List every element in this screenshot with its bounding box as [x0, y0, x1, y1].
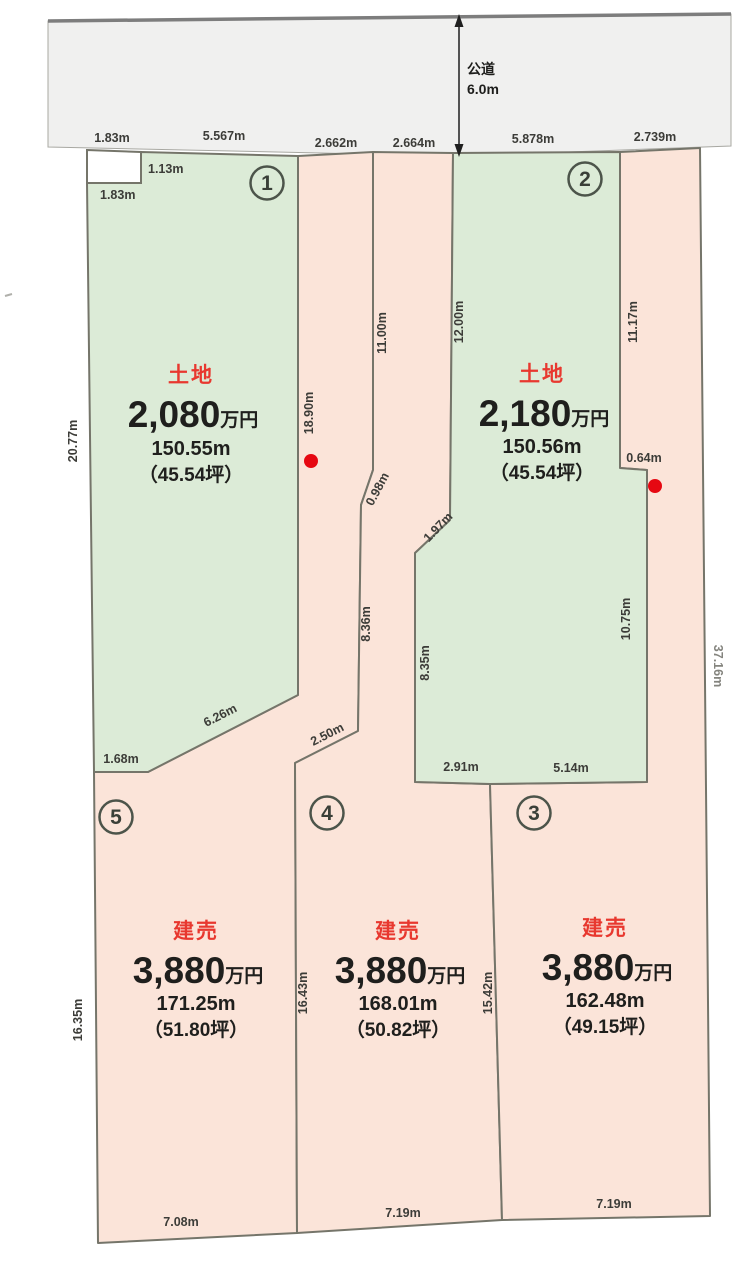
dim-strip4-top: 2.664m [393, 136, 435, 150]
dim-plot2-right-upper: 11.17m [626, 301, 640, 343]
road-area [48, 14, 731, 156]
plot-2-tsubo: （45.54坪） [490, 461, 595, 484]
dim-plot1-bottom: 1.68m [103, 752, 138, 766]
plot-1-price-value: 2,080 [128, 394, 221, 435]
plot-5-type-label: 建売 [173, 919, 219, 943]
dim-plot1-top: 5.567m [203, 129, 245, 143]
plot-3-tsubo: （49.15坪） [553, 1015, 658, 1038]
stray-mark [5, 294, 12, 296]
plot-1-tsubo: （45.54坪） [139, 463, 244, 486]
dim-plot1-left: 20.77m [66, 420, 80, 462]
plot-3-price-value: 3,880 [542, 947, 635, 988]
dim-plot4-plot3-divider: 15.42m [481, 972, 495, 1014]
dim-plot2-left-lower: 8.35m [418, 645, 432, 680]
plot-1-price-unit: 万円 [219, 410, 258, 431]
plot-4-price-unit: 万円 [426, 966, 465, 987]
plot-5-price-unit: 万円 [224, 966, 263, 987]
plot-5-price-value: 3,880 [133, 950, 226, 991]
plot-1-type-label: 土地 [168, 363, 214, 387]
dim-plot2-top: 5.878m [512, 132, 554, 146]
road-width-label: 6.0m [467, 81, 499, 97]
plot-2-number: 2 [579, 168, 591, 191]
corner-notch [87, 150, 141, 183]
dim-plot5-left: 16.35m [71, 999, 85, 1041]
dim-plot2-step: 0.64m [626, 451, 661, 465]
plot-2-price-unit: 万円 [570, 409, 609, 430]
plot-2-price-value: 2,180 [479, 393, 572, 434]
dim-notch-bottom: 1.83m [100, 188, 135, 202]
dim-plot2-left: 12.00m [452, 301, 466, 343]
plot-4-tsubo: （50.82坪） [346, 1018, 451, 1041]
dim-notch-right: 1.13m [148, 162, 183, 176]
dim-plot2-bottom-right: 5.14m [553, 761, 588, 775]
plot-3-type-label: 建売 [582, 916, 628, 940]
dim-plot2-bottom-left: 2.91m [443, 760, 478, 774]
plot-3-number: 3 [528, 802, 540, 825]
red-dot-right [648, 479, 662, 493]
dim-plot4-bottom: 7.19m [385, 1206, 420, 1220]
land-plot-diagram: 公道 6.0m 1.83m 5.567m 2.662m 2.664m 5.878… [0, 0, 752, 1280]
plot-1-area: 150.55m [152, 438, 231, 460]
plot-5-area: 171.25m [157, 993, 236, 1015]
plot-1-shape [87, 152, 298, 772]
plot-4-type-label: 建売 [375, 919, 421, 943]
dim-outer-right: 37.16m [711, 645, 725, 687]
dim-strip5-right-mid: 8.36m [359, 606, 373, 641]
plot-4-area: 168.01m [359, 993, 438, 1015]
dim-plot1-right: 18.90m [302, 392, 316, 434]
dim-notch-top: 1.83m [94, 131, 129, 145]
dim-plot3-bottom: 7.19m [596, 1197, 631, 1211]
red-dot-left [304, 454, 318, 468]
plot-5-tsubo: （51.80坪） [144, 1018, 249, 1041]
dim-plot5-bottom: 7.08m [163, 1215, 198, 1229]
plot-4-number: 4 [321, 802, 333, 825]
dim-strip3-top: 2.739m [634, 130, 676, 144]
dim-plot2-right-lower: 10.75m [619, 598, 633, 640]
road-name-label: 公道 [467, 61, 495, 77]
plot-4-price-value: 3,880 [335, 950, 428, 991]
dim-plot5-plot4-divider: 16.43m [296, 972, 310, 1014]
plot-3-price-unit: 万円 [633, 963, 672, 984]
plot-5-number: 5 [110, 806, 122, 829]
dim-strip5-top: 2.662m [315, 136, 357, 150]
plot-3-area: 162.48m [566, 990, 645, 1012]
plot-1-number: 1 [261, 172, 273, 195]
plot-2-area: 150.56m [503, 436, 582, 458]
dim-strip5-right-upper: 11.00m [375, 312, 389, 354]
plot-2-type-label: 土地 [519, 362, 565, 386]
